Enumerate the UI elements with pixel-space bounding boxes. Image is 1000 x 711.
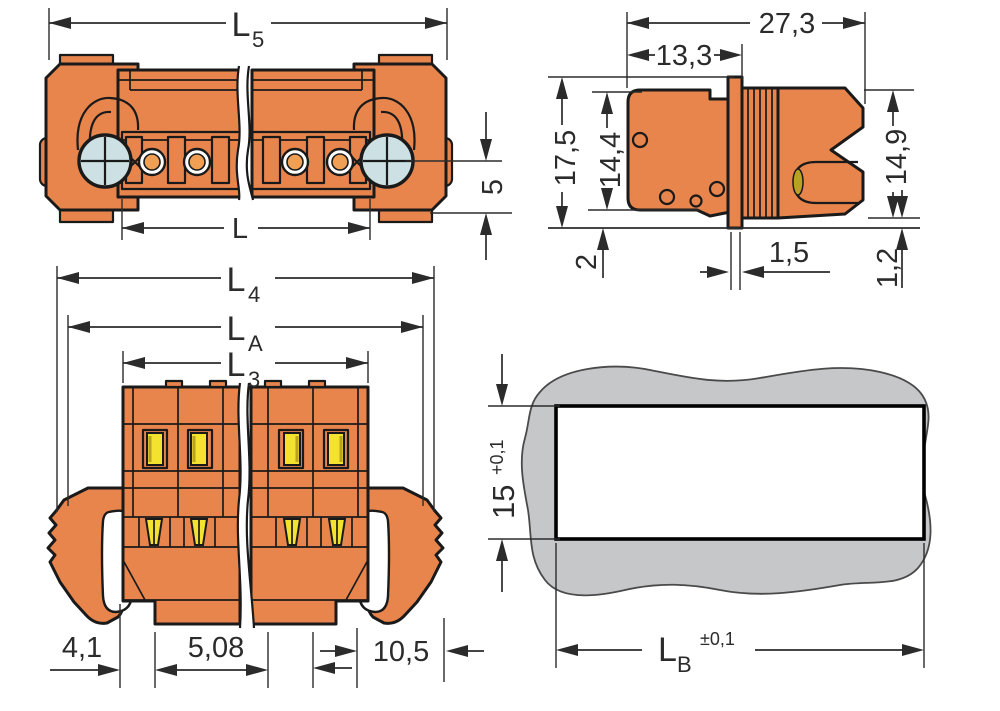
- dim-label-la-sub: A: [248, 331, 263, 356]
- coding-tab: [210, 381, 226, 387]
- contact-separator: [168, 137, 185, 183]
- dim-label-5-08: 5,08: [188, 632, 244, 664]
- dim-2: 2: [571, 228, 609, 278]
- front-view: L 4 L A L 3 4,1: [48, 261, 484, 688]
- dim-label-13-3: 13,3: [656, 40, 712, 72]
- dim-label-1-5: 1,5: [769, 237, 809, 269]
- dim-label-l3: L: [227, 346, 246, 384]
- dim-label-la: L: [227, 310, 246, 348]
- dim-label-l: L: [232, 213, 248, 245]
- dim-label-5: 5: [477, 179, 509, 195]
- contact-separator: [212, 137, 229, 183]
- panel-cutout-view: 15 +0,1 L B ±0,1: [486, 354, 931, 677]
- top-view-right-half: [252, 55, 452, 222]
- dim-label-l4-sub: 4: [248, 282, 260, 307]
- dim-10-5: 10,5: [320, 636, 484, 668]
- dim-label-2: 2: [571, 254, 603, 270]
- side-body-left-block: [628, 90, 730, 216]
- panel-cutout-rect: [556, 406, 924, 539]
- dim-label-l5: L: [232, 6, 251, 44]
- top-view-left-half: [40, 55, 240, 222]
- dim-label-14-4: 14,4: [595, 132, 627, 188]
- dim-14-9: 14,9: [864, 90, 920, 218]
- dim-label-lb-tol: ±0,1: [700, 629, 735, 649]
- dim-label-1-2: 1,2: [872, 248, 904, 288]
- dim-label-lb-sub: B: [677, 652, 692, 677]
- dim-label-lb: L: [658, 631, 677, 669]
- dim-label-17-5: 17,5: [550, 130, 582, 186]
- dim-4-1: 4,1: [50, 632, 186, 676]
- dim-label-l5-sub: 5: [252, 27, 264, 52]
- dim-label-14-9: 14,9: [881, 129, 913, 185]
- dim-label-15-tol: +0,1: [487, 439, 507, 475]
- contact-pin: [144, 154, 160, 170]
- dim-5-08: 5,08: [186, 632, 352, 676]
- top-view: L 5 L 5: [40, 6, 512, 260]
- dim-label-l3-sub: 3: [248, 367, 260, 392]
- technical-drawing-page: L 5 L 5: [0, 0, 1000, 711]
- dim-13-3: 13,3: [627, 40, 742, 80]
- dim-l: L: [122, 199, 370, 245]
- side-flange-plate: [728, 77, 742, 228]
- pocket-contact-sliver: [793, 169, 803, 195]
- dim-l5: L 5: [49, 6, 447, 60]
- dim-label-4-1: 4,1: [62, 632, 102, 664]
- dim-label-l4: L: [227, 261, 246, 299]
- dim-label-27-3: 27,3: [759, 8, 815, 40]
- front-view-right-half: [251, 381, 443, 624]
- dim-label-10-5: 10,5: [373, 636, 429, 668]
- coding-tab: [166, 381, 182, 387]
- contact-pin: [189, 154, 205, 170]
- side-view: 27,3 13,3 17,5 14,4: [548, 8, 920, 290]
- connector-dimensional-drawing: L 5 L 5: [0, 0, 1000, 711]
- front-view-left-half: [48, 381, 240, 624]
- dim-label-15: 15: [486, 485, 521, 519]
- flange-bottom-tab: [60, 210, 113, 222]
- dim-1-5: 1,5: [700, 232, 830, 290]
- side-body-right-block: [778, 88, 863, 218]
